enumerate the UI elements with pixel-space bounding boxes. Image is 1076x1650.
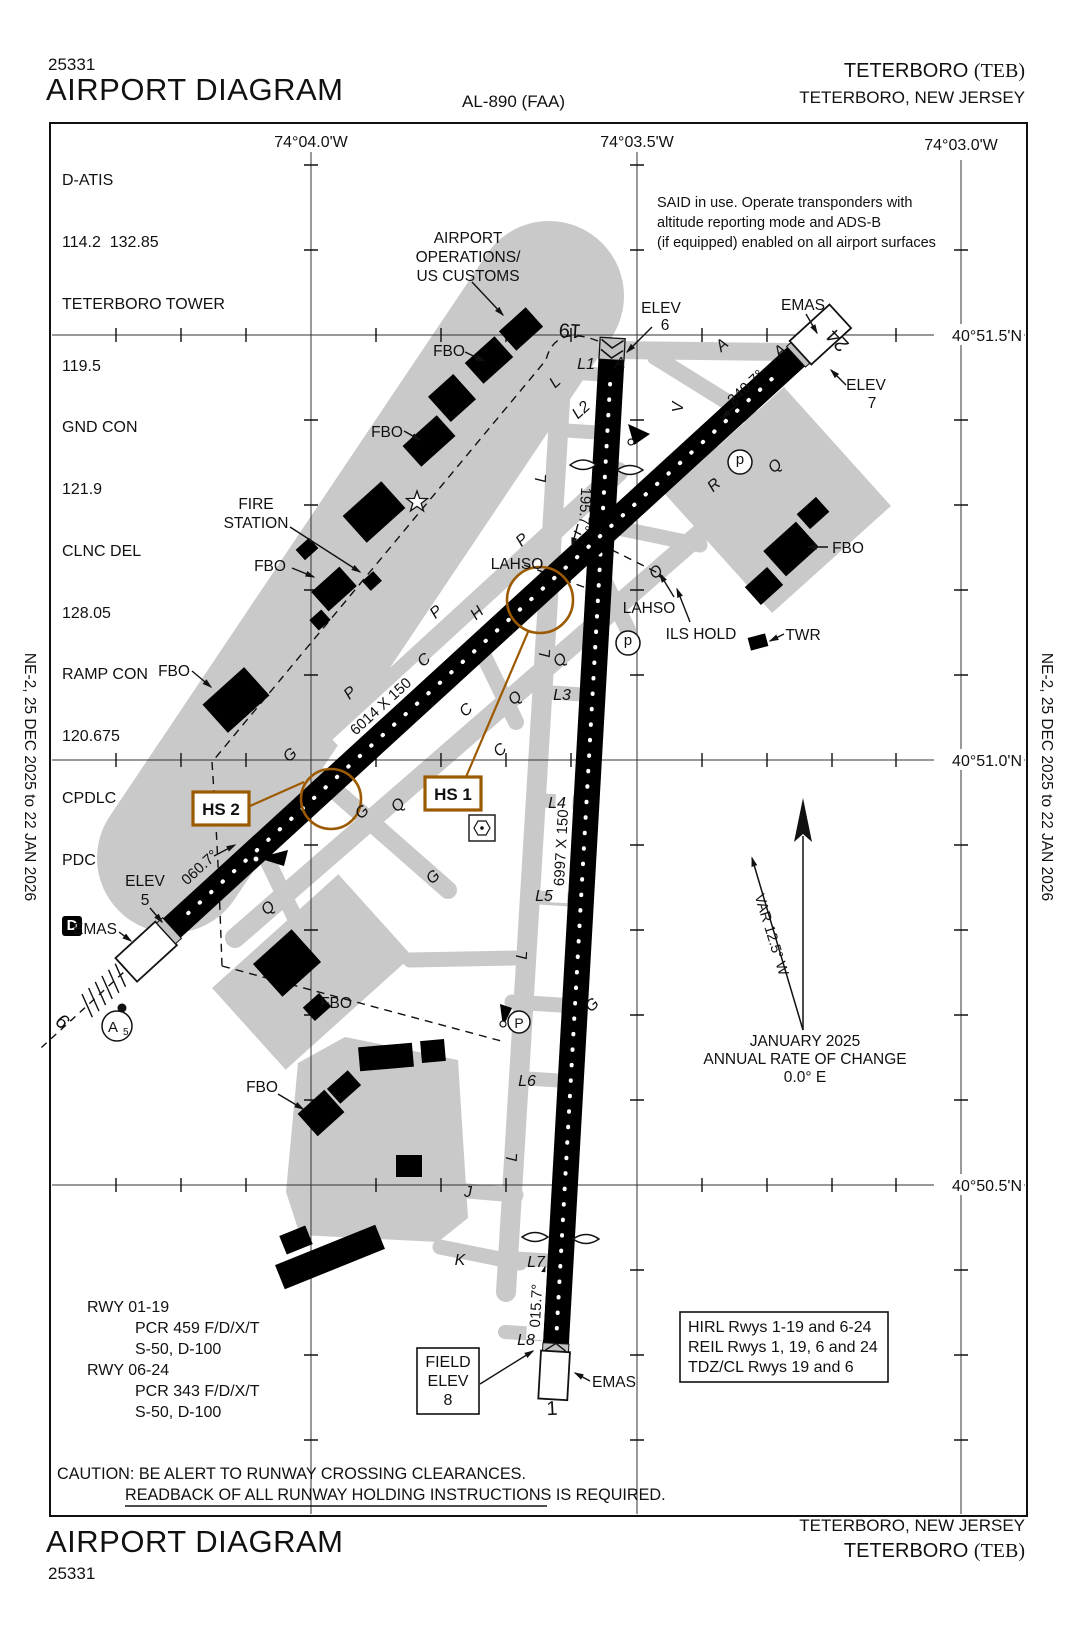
airport-diagram-page: 25331 AIRPORT DIAGRAM AL-890 (FAA) TETER…	[0, 0, 1076, 1650]
emas-label: EMAS	[73, 921, 117, 938]
fbo-label: FBO	[246, 1079, 278, 1096]
airport-name: TETERBORO	[844, 1540, 968, 1562]
deice-pad-icon: d	[728, 450, 752, 474]
svg-text:L: L	[537, 648, 554, 658]
svg-text:L4: L4	[548, 795, 566, 812]
rwy-1-heading: 015.7°	[527, 1284, 546, 1328]
lighting-box: HIRL Rwys 1-19 and 6-24 REIL Rwys 1, 19,…	[680, 1312, 888, 1382]
compass-rate2: 0.0° E	[784, 1069, 826, 1086]
rwy-1-number: 1	[546, 1398, 558, 1421]
ils-hold-label: ILS HOLD	[666, 626, 737, 643]
hotspot-2-label: HS 2	[202, 800, 240, 819]
svg-text:J: J	[463, 1184, 473, 1201]
svg-text:P: P	[514, 1015, 523, 1031]
approach-light-a5-icon: A 5	[102, 1004, 132, 1042]
lat-label-1: 40°51.5'N	[952, 328, 1022, 345]
rwy-19-heading: 195.7°	[575, 487, 594, 531]
deice-pad-icon: d	[616, 631, 640, 655]
compass-date: JANUARY 2025	[750, 1033, 861, 1050]
tower-building	[748, 633, 769, 650]
svg-text:C: C	[490, 740, 510, 761]
lahso-label: LAHSO	[491, 556, 544, 573]
elev7-label: ELEV	[846, 377, 886, 394]
caution-line1: CAUTION: BE ALERT TO RUNWAY CROSSING CLE…	[57, 1465, 526, 1483]
svg-text:L1: L1	[577, 356, 595, 373]
svg-text:L8: L8	[517, 1332, 535, 1349]
compass-rate1: ANNUAL RATE OF CHANGE	[703, 1051, 906, 1068]
ops-label-1: AIRPORT	[434, 230, 503, 247]
svg-text:L: L	[514, 950, 531, 960]
svg-text:V: V	[670, 400, 687, 412]
fire-station-label-1: FIRE	[238, 496, 273, 513]
svg-text:K: K	[455, 1252, 467, 1269]
rwy-1-19-dimension: 6997 X 150	[551, 809, 572, 887]
svg-text:L: L	[504, 1152, 521, 1162]
field-elev-line2: ELEV	[428, 1373, 469, 1390]
fbo-label: FBO	[254, 558, 286, 575]
svg-text:d: d	[736, 452, 744, 469]
rwy0119-pcr: PCR 459 F/D/X/T	[135, 1320, 260, 1337]
airport-map: d d P A 5 VAR 12.5° W	[0, 0, 1076, 1650]
hotspot-1-label: HS 1	[434, 785, 472, 804]
rwy-6-number: 6	[50, 1010, 74, 1033]
runway-data-block: RWY 01-19 PCR 459 F/D/X/T S-50, D-100 RW…	[87, 1299, 260, 1421]
rwy0624-pcr: PCR 343 F/D/X/T	[135, 1383, 260, 1400]
lat-label-2: 40°51.0'N	[952, 753, 1022, 770]
fbo-label: FBO	[320, 995, 352, 1012]
lighting-line1: HIRL Rwys 1-19 and 6-24	[688, 1319, 872, 1336]
variation-label: VAR 12.5° W	[751, 892, 791, 978]
rwy0119-title: RWY 01-19	[87, 1299, 169, 1316]
fbo-label: FBO	[433, 343, 465, 360]
field-elev-value: 8	[444, 1392, 453, 1409]
lon-label-3: 74°03.0'W	[924, 137, 998, 154]
emas-label: EMAS	[592, 1374, 636, 1391]
ops-label-3: US CUSTOMS	[416, 268, 519, 285]
twr-label: TWR	[785, 627, 820, 644]
fbo-label: FBO	[158, 663, 190, 680]
svg-text:A: A	[108, 1019, 118, 1036]
rwy0624-strength: S-50, D-100	[135, 1404, 221, 1421]
fire-station-label-2: STATION	[224, 515, 289, 532]
lon-label-2: 74°03.5'W	[600, 134, 674, 151]
svg-text:L3: L3	[553, 687, 571, 704]
emas-label: EMAS	[781, 297, 825, 314]
chart-number-bottom: 25331	[48, 1564, 95, 1584]
lat-label-3: 40°50.5'N	[952, 1178, 1022, 1195]
svg-text:L2: L2	[569, 398, 594, 423]
elev6-label: ELEV	[641, 300, 681, 317]
elev7-value: 7	[868, 395, 877, 412]
hexagon-square-icon	[469, 815, 495, 841]
lon-label-1: 74°04.0'W	[274, 134, 348, 151]
svg-text:L5: L5	[535, 888, 553, 905]
lighting-line2: REIL Rwys 1, 19, 6 and 24	[688, 1339, 878, 1356]
true-north-arrow-icon	[794, 798, 812, 842]
rwy0624-title: RWY 06-24	[87, 1362, 169, 1379]
parking-circle-icon: P	[508, 1011, 530, 1033]
elev5-label: ELEV	[125, 873, 165, 890]
airport-title-bottom: TETERBORO (TEB)	[625, 1540, 1025, 1563]
elev5-value: 5	[141, 892, 150, 909]
compass-rose: VAR 12.5° W JANUARY 2025 ANNUAL RATE OF …	[703, 798, 906, 1086]
svg-text:A: A	[614, 355, 626, 372]
lahso-label: LAHSO	[623, 600, 676, 617]
fbo-label: FBO	[371, 424, 403, 441]
lighting-line3: TDZ/CL Rwys 19 and 6	[688, 1359, 854, 1376]
field-elev-line1: FIELD	[425, 1354, 470, 1371]
svg-text:L7: L7	[527, 1254, 546, 1271]
page-title-bottom: AIRPORT DIAGRAM	[46, 1524, 343, 1560]
svg-text:L: L	[533, 473, 550, 483]
caution-line2: READBACK OF ALL RUNWAY HOLDING INSTRUCTI…	[125, 1486, 666, 1504]
caution-block: CAUTION: BE ALERT TO RUNWAY CROSSING CLE…	[57, 1465, 666, 1506]
svg-text:5: 5	[123, 1027, 129, 1038]
svg-text:d: d	[624, 633, 632, 650]
field-elev-box: FIELD ELEV 8	[417, 1348, 479, 1414]
svg-text:L6: L6	[518, 1073, 536, 1090]
rwy0119-strength: S-50, D-100	[135, 1341, 221, 1358]
fbo-label: FBO	[832, 540, 864, 557]
ops-label-2: OPERATIONS/	[416, 249, 521, 266]
airport-ident: (TEB)	[974, 1540, 1025, 1562]
elev6-value: 6	[661, 317, 670, 334]
rwy-19-number: 19	[558, 318, 581, 341]
airport-city-bottom: TETERBORO, NEW JERSEY	[625, 1516, 1025, 1536]
